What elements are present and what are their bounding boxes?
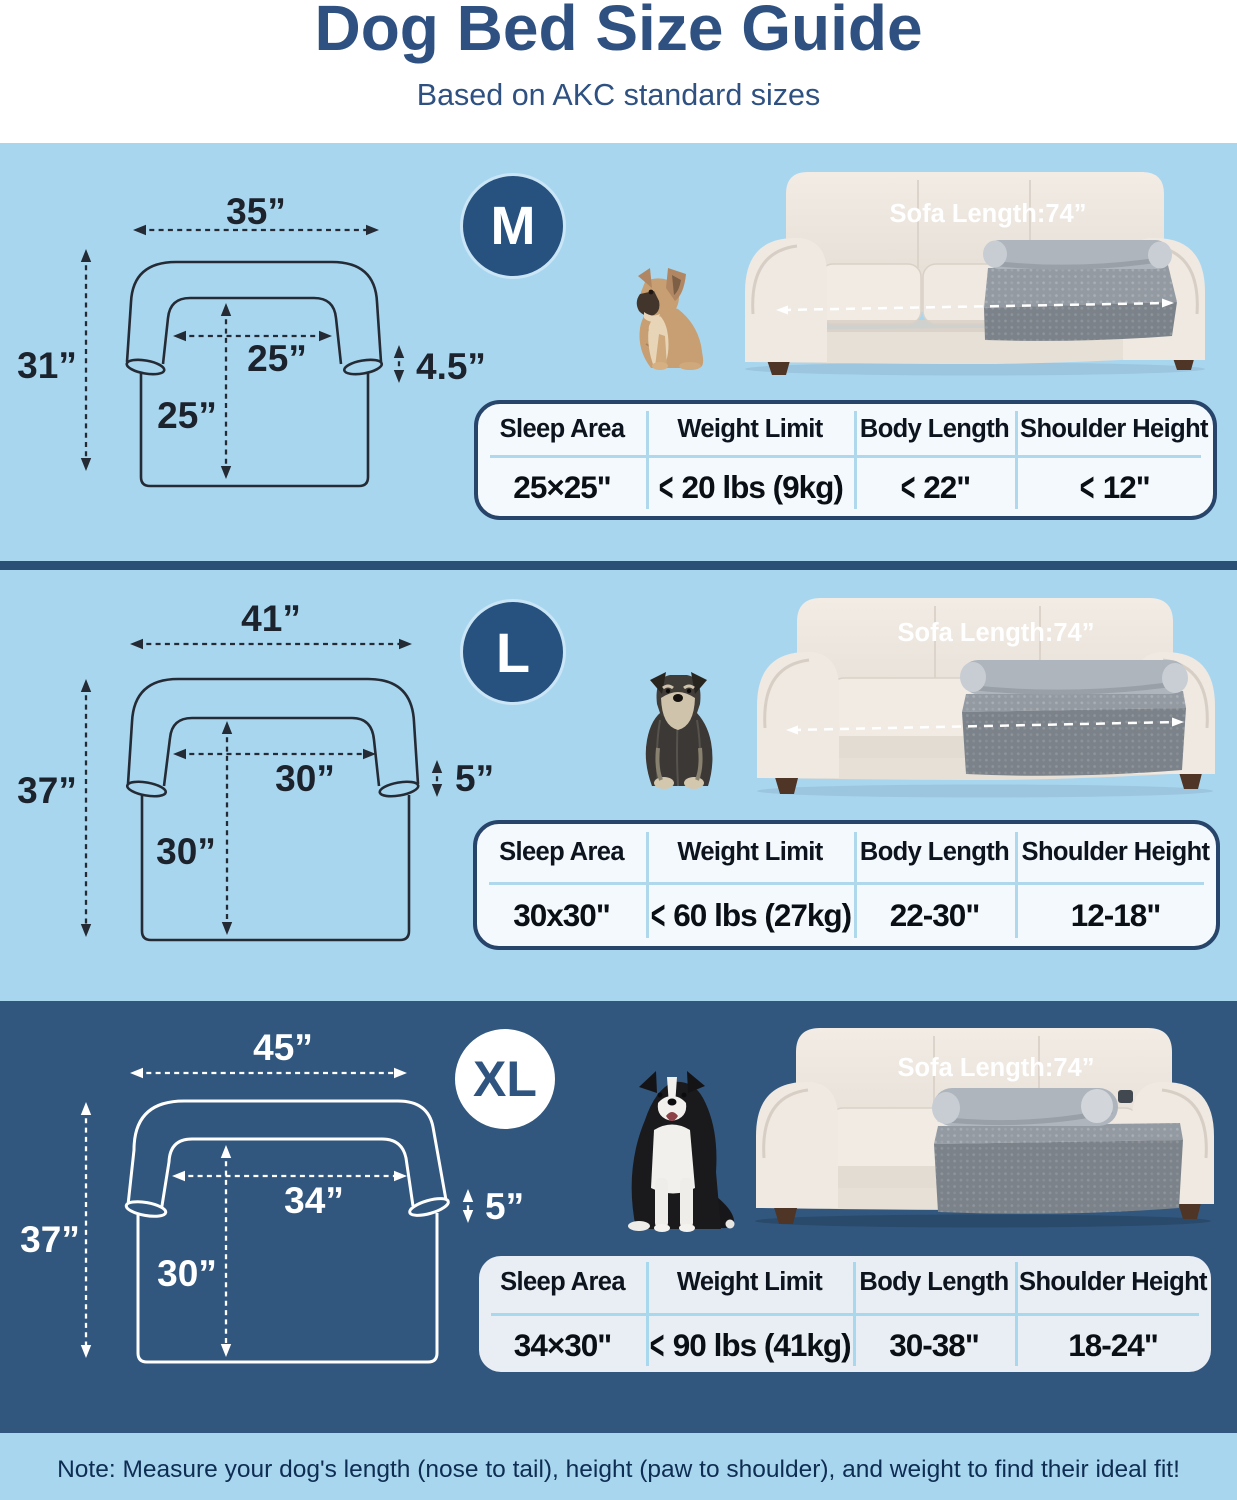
svg-text:37”: 37” (17, 770, 77, 811)
svg-text:45”: 45” (253, 1027, 313, 1068)
svg-text:25”: 25” (157, 395, 217, 436)
svg-text:35”: 35” (226, 191, 286, 232)
svg-text:30”: 30” (156, 831, 216, 872)
svg-text:30”: 30” (157, 1253, 217, 1294)
svg-text:41”: 41” (241, 598, 301, 639)
svg-text:Sofa Length:74”: Sofa Length:74” (890, 200, 1087, 228)
svg-text:25”: 25” (247, 338, 307, 379)
svg-text:4.5”: 4.5” (416, 346, 486, 387)
svg-text:5”: 5” (455, 758, 494, 799)
svg-text:31”: 31” (17, 345, 77, 386)
svg-text:30”: 30” (275, 758, 335, 799)
svg-text:37”: 37” (20, 1219, 80, 1260)
svg-text:34”: 34” (284, 1180, 344, 1221)
svg-text:Sofa Length:74”: Sofa Length:74” (898, 1054, 1095, 1082)
svg-text:5”: 5” (485, 1186, 524, 1227)
svg-text:Sofa Length:74”: Sofa Length:74” (898, 619, 1095, 647)
